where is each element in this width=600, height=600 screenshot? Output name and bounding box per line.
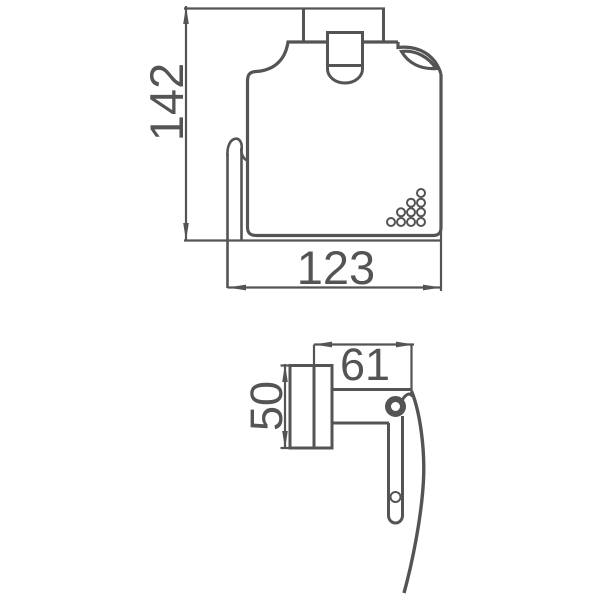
technical-drawing-canvas: 142 — [0, 0, 600, 600]
dot — [417, 189, 425, 197]
dim-50-label: 50 — [241, 381, 292, 431]
pin-capsule — [389, 416, 403, 523]
pin-hole — [391, 492, 401, 502]
dim-123-arrow-right — [423, 285, 441, 291]
dot — [397, 218, 405, 226]
cover-curl-corner — [398, 42, 441, 74]
paper-strip — [227, 139, 248, 288]
cover-profile-curve — [404, 391, 424, 593]
dot — [397, 208, 405, 216]
dot — [407, 199, 415, 207]
hinge-ring — [388, 399, 403, 414]
hinge-curl-tail — [402, 394, 413, 400]
plate-rect — [290, 366, 332, 449]
dim-50-arrow-down — [282, 431, 288, 449]
curl-leaf — [402, 51, 437, 68]
dim-123-label: 123 — [297, 241, 375, 294]
center-clip — [328, 33, 363, 84]
strip-curl — [227, 139, 241, 156]
dot — [417, 199, 425, 207]
dim-142-label: 142 — [140, 63, 193, 141]
dim-61-arrow-left — [314, 342, 332, 348]
dim-123-arrow-left — [228, 285, 247, 291]
dot — [407, 208, 415, 216]
dot — [387, 218, 395, 226]
dimension-drawing: 142 — [0, 0, 600, 600]
dim-61-label: 61 — [340, 339, 390, 390]
dimension-50: 50 — [241, 364, 292, 449]
dim-50-arrow-up — [282, 364, 288, 382]
dot — [407, 218, 415, 226]
clip-body — [328, 33, 363, 84]
front-view: 142 — [140, 6, 441, 294]
dot-pattern — [387, 189, 425, 226]
dim-142-arrow-down — [183, 223, 189, 241]
dot — [417, 208, 425, 216]
spindle-pin — [389, 416, 403, 523]
side-view: 61 50 — [241, 339, 424, 593]
dot — [417, 218, 425, 226]
